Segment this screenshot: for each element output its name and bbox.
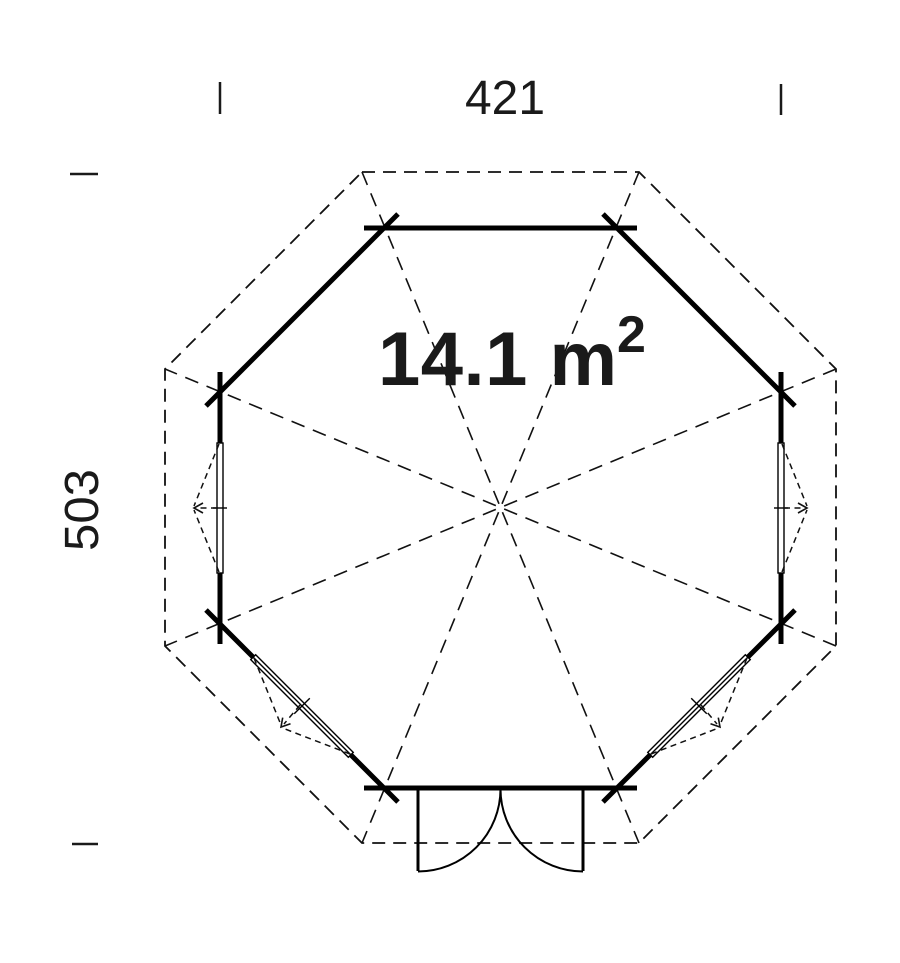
wall-bottom-left-upper	[206, 610, 255, 659]
window-right	[774, 443, 807, 573]
window-left	[194, 443, 227, 573]
floor-plan-drawing: 421 503	[0, 0, 900, 963]
wall-bottom-right-upper	[746, 610, 795, 659]
window-bottom-right-frame	[642, 649, 755, 762]
window-right-swing-line	[782, 510, 807, 572]
roof-ridge-line	[165, 369, 836, 646]
dimension-height-label: 503	[56, 469, 109, 551]
window-right-swing-line	[782, 444, 807, 506]
roof-ridge-lines	[165, 172, 836, 843]
dimension-width: 421	[220, 72, 781, 125]
window-bottom-right-open-line	[701, 705, 717, 724]
area-label: 14.1 m 2	[378, 306, 646, 402]
double-door	[418, 789, 583, 872]
window-left-swing-line	[194, 444, 219, 506]
door-swing-arc-left	[418, 789, 501, 872]
area-superscript: 2	[617, 306, 646, 364]
roof-outline	[165, 172, 836, 843]
window-bottom-right	[642, 649, 755, 762]
window-bottom-left	[245, 649, 358, 762]
dimension-height: 503	[56, 174, 109, 844]
dimension-width-label: 421	[465, 72, 545, 125]
area-value: 14.1 m	[378, 317, 618, 402]
roof-ridge-line	[165, 369, 836, 646]
roof-ridge-line	[362, 172, 639, 843]
wall-top-left	[206, 214, 398, 406]
floor-plan-page: 421 503	[0, 0, 900, 963]
window-bottom-left-open-line	[284, 705, 300, 724]
door-swing-arc-right	[501, 789, 584, 872]
window-bottom-left-frame	[245, 649, 358, 762]
roof-ridge-line	[362, 172, 639, 843]
wall-bottom-left-lower	[349, 753, 398, 802]
window-left-swing-line	[194, 510, 219, 572]
wall-bottom-right-lower	[603, 753, 652, 802]
